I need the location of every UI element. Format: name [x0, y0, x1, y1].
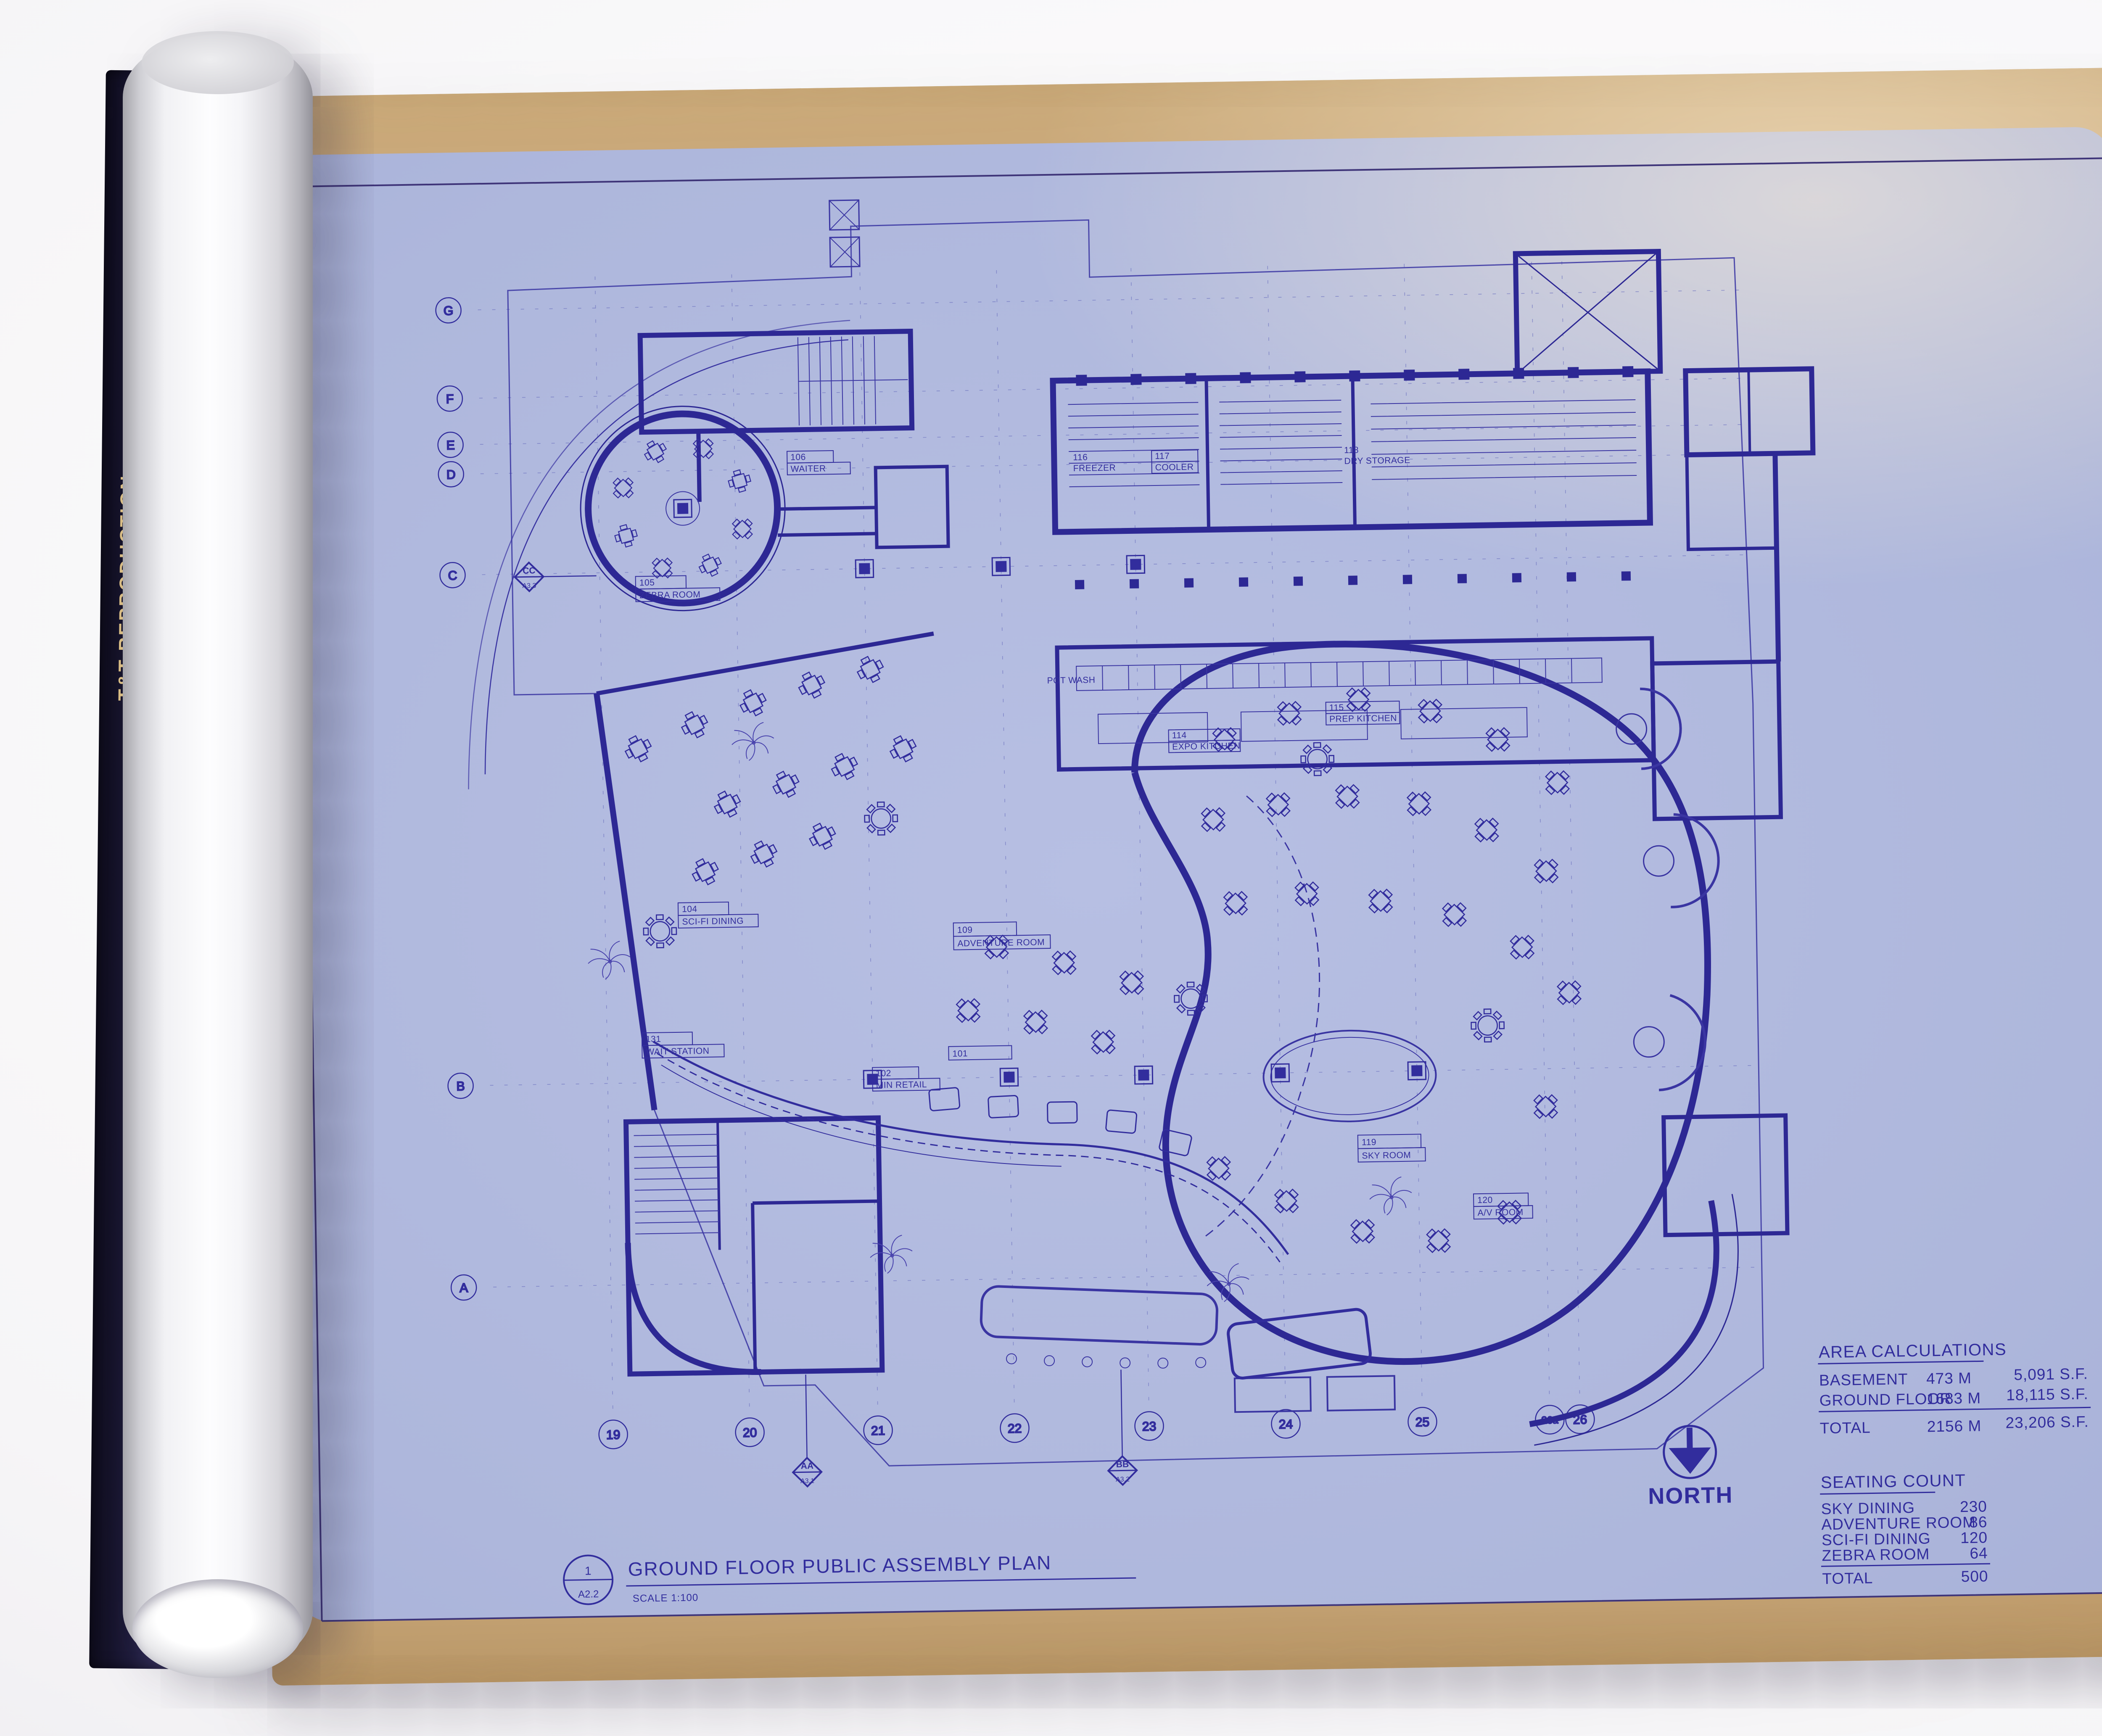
- svg-text:118: 118: [1344, 445, 1359, 455]
- grid-bubble-C: C: [448, 569, 457, 583]
- grid-bubble-20: 20: [743, 1426, 757, 1440]
- svg-text:WAIT STATION: WAIT STATION: [646, 1046, 709, 1057]
- svg-text:64: 64: [1970, 1544, 1988, 1562]
- svg-text:131: 131: [646, 1034, 661, 1045]
- svg-text:106: 106: [790, 452, 806, 462]
- svg-text:AA: AA: [801, 1461, 814, 1471]
- room-label-wait-station: 131 WAIT STATION: [642, 1032, 724, 1058]
- room-label-expo-kitchen: 114 EXPO KITCHEN: [1169, 729, 1241, 753]
- svg-text:SCI-FI DINING: SCI-FI DINING: [682, 916, 744, 926]
- area-calculations: AREA CALCULATIONS BASEMENT 473 M 5,091 S…: [1818, 1339, 2091, 1437]
- svg-text:473 M: 473 M: [1926, 1369, 1972, 1388]
- grid-bubble-D: D: [446, 468, 456, 482]
- room-label-101: 101: [948, 1045, 1011, 1060]
- north-arrow: NORTH: [1647, 1425, 1733, 1509]
- svg-text:105: 105: [639, 578, 655, 588]
- area-calculations-title: AREA CALCULATIONS: [1819, 1340, 2007, 1361]
- grid-bubble-A: A: [459, 1281, 468, 1295]
- drawing-title-text: GROUND FLOOR PUBLIC ASSEMBLY PLAN: [628, 1551, 1051, 1580]
- room-label-cooler: 117 COOLER: [1151, 450, 1198, 473]
- room-label-pot-wash: POT WASH: [1047, 675, 1095, 686]
- seating-count-title: SEATING COUNT: [1821, 1471, 1966, 1492]
- room-label-av-room: 120 A/V ROOM: [1474, 1193, 1533, 1219]
- rolled-paper: [123, 34, 313, 1674]
- grid-bubble-E: E: [446, 438, 455, 452]
- svg-text:101: 101: [952, 1049, 968, 1059]
- svg-text:117: 117: [1155, 451, 1170, 461]
- svg-text:115: 115: [1329, 703, 1344, 713]
- grid-bubble-G: G: [444, 304, 454, 318]
- svg-text:ADVENTURE ROOM: ADVENTURE ROOM: [957, 937, 1045, 948]
- structural-columns: [674, 488, 1426, 1091]
- north-arrow-icon: [1669, 1427, 1711, 1474]
- svg-text:86: 86: [1969, 1513, 1988, 1531]
- room-label-min-retail: 102 MIN RETAIL: [872, 1066, 940, 1091]
- svg-text:104: 104: [682, 904, 697, 914]
- svg-text:ZEBRA ROOM: ZEBRA ROOM: [1822, 1545, 1930, 1564]
- grid-bubble-24: 24: [1279, 1417, 1293, 1432]
- grid-bubbles-columns: 19 20 21 22 23 24 25 26a 26: [599, 1405, 1595, 1449]
- seating-count: SEATING COUNT SKY DINING 230 ADVENTURE R…: [1820, 1471, 1991, 1587]
- svg-text:18,115 S.F.: 18,115 S.F.: [2006, 1385, 2089, 1404]
- svg-text:WAITER: WAITER: [791, 464, 826, 474]
- svg-text:230: 230: [1960, 1498, 1987, 1515]
- svg-text:5,091 S.F.: 5,091 S.F.: [2014, 1365, 2088, 1383]
- svg-text:119: 119: [1362, 1137, 1376, 1148]
- svg-text:A3.1: A3.1: [800, 1477, 814, 1485]
- svg-text:TOTAL: TOTAL: [1820, 1419, 1871, 1437]
- svg-text:2156 M: 2156 M: [1927, 1417, 1981, 1435]
- drawing-title: 1 A2.2 GROUND FLOOR PUBLIC ASSEMBLY PLAN…: [563, 1547, 1136, 1605]
- room-label-scifi-dining: 104 SCI-FI DINING: [678, 902, 758, 928]
- grid-bubble-25: 25: [1415, 1415, 1430, 1430]
- walls: [577, 249, 1828, 1460]
- grid-bubble-19: 19: [606, 1428, 621, 1442]
- room-label-sky-room: 119 SKY ROOM: [1358, 1134, 1426, 1162]
- room-label-prep-kitchen: 115 PREP KITCHEN: [1326, 701, 1400, 725]
- grid-bubble-22: 22: [1008, 1422, 1022, 1436]
- room-label-waiter: 106 WAITER: [787, 450, 850, 475]
- svg-text:500: 500: [1961, 1567, 1988, 1585]
- grid-bubble-21: 21: [871, 1424, 885, 1438]
- svg-text:120: 120: [1960, 1529, 1988, 1546]
- svg-text:PREP KITCHEN: PREP KITCHEN: [1329, 713, 1397, 724]
- dining-tables: [604, 419, 1591, 1272]
- blueprint-photo: T&T REPRODUCTION and Supplies Inc. 111 N…: [0, 0, 2102, 1736]
- north-label: NORTH: [1648, 1483, 1733, 1509]
- svg-text:CC: CC: [523, 566, 536, 575]
- blueprint-sheet: 19 20 21 22 23 24 25 26a 26 A B C D E F …: [248, 65, 2102, 1686]
- svg-text:114: 114: [1172, 731, 1187, 741]
- svg-text:109: 109: [957, 925, 973, 935]
- grid-bubble-F: F: [446, 392, 454, 406]
- floor-plan-drawing: 19 20 21 22 23 24 25 26a 26 A B C D E F …: [248, 65, 2102, 1686]
- svg-text:A3.3: A3.3: [522, 582, 536, 590]
- svg-text:ZEBRA ROOM: ZEBRA ROOM: [639, 590, 700, 600]
- room-label-adventure-room: 109 ADVENTURE ROOM: [953, 921, 1051, 950]
- svg-text:116: 116: [1073, 452, 1088, 462]
- svg-text:BB: BB: [1116, 1459, 1129, 1469]
- svg-text:COOLER: COOLER: [1155, 462, 1194, 472]
- detail-sheet-ref: A2.2: [578, 1588, 599, 1600]
- svg-text:FREEZER: FREEZER: [1073, 463, 1116, 473]
- svg-text:SKY ROOM: SKY ROOM: [1362, 1150, 1411, 1161]
- svg-text:120: 120: [1477, 1195, 1493, 1206]
- svg-text:102: 102: [876, 1069, 891, 1079]
- svg-text:MIN RETAIL: MIN RETAIL: [876, 1080, 927, 1090]
- property-line: [460, 210, 1765, 1472]
- svg-text:A3.2: A3.2: [1116, 1476, 1130, 1483]
- detail-number: 1: [585, 1564, 592, 1577]
- svg-text:EXPO KITCHEN: EXPO KITCHEN: [1172, 741, 1241, 752]
- svg-text:TOTAL: TOTAL: [1822, 1569, 1873, 1587]
- svg-text:POT WASH: POT WASH: [1047, 675, 1095, 686]
- svg-text:DRY STORAGE: DRY STORAGE: [1344, 455, 1410, 466]
- grid-bubble-23: 23: [1142, 1419, 1157, 1434]
- grid-bubbles-rows: A B C D E F G: [436, 298, 476, 1301]
- grid-bubble-B: B: [456, 1079, 465, 1093]
- svg-text:BASEMENT: BASEMENT: [1819, 1370, 1908, 1389]
- svg-text:1683 M: 1683 M: [1926, 1389, 1981, 1407]
- svg-text:23,206 S.F.: 23,206 S.F.: [2005, 1413, 2089, 1431]
- svg-text:A/V ROOM: A/V ROOM: [1477, 1207, 1523, 1218]
- drawing-scale: SCALE 1:100: [633, 1592, 699, 1604]
